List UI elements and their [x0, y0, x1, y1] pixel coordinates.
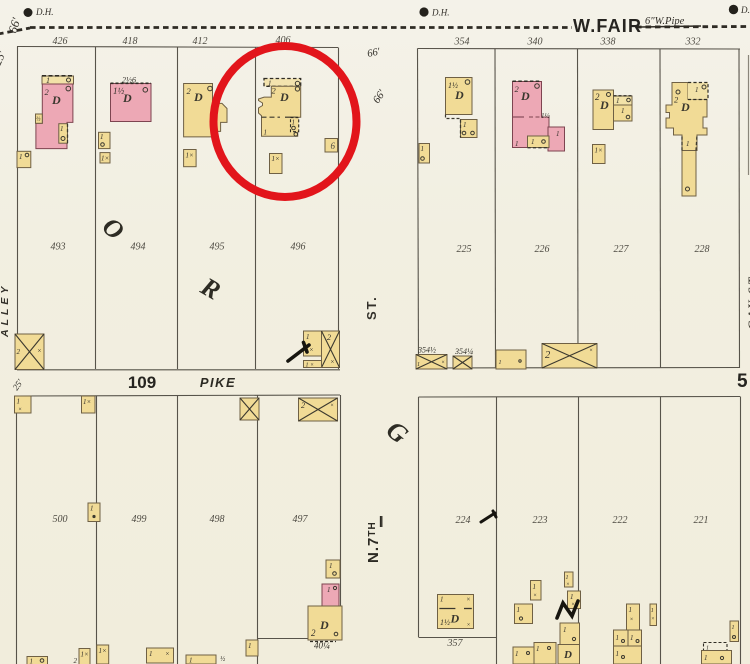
- svg-text:1: 1: [30, 658, 34, 664]
- svg-text:225: 225: [457, 244, 472, 255]
- svg-text:D: D: [520, 89, 530, 103]
- svg-text:1: 1: [695, 86, 699, 94]
- svg-text:½: ½: [36, 116, 41, 123]
- svg-text:1: 1: [189, 657, 193, 664]
- svg-text:5: 5: [737, 371, 748, 392]
- svg-text:354¼: 354¼: [454, 347, 473, 356]
- svg-text:2½6: 2½6: [122, 76, 136, 85]
- svg-text:2: 2: [17, 348, 21, 356]
- svg-text:D: D: [319, 618, 329, 632]
- svg-text:×: ×: [533, 593, 537, 599]
- svg-text:D: D: [279, 90, 289, 104]
- svg-text:×: ×: [330, 403, 334, 409]
- svg-text:338: 338: [600, 37, 616, 48]
- svg-text:332: 332: [685, 37, 701, 48]
- svg-text:1: 1: [570, 593, 574, 601]
- svg-text:PIKE: PIKE: [200, 375, 236, 390]
- svg-text:1: 1: [90, 505, 94, 513]
- svg-text:D: D: [680, 100, 690, 114]
- svg-text:1: 1: [616, 650, 620, 658]
- svg-text:1×: 1×: [272, 155, 280, 163]
- svg-text:418: 418: [123, 36, 138, 47]
- svg-text:495: 495: [210, 242, 225, 253]
- svg-text:D: D: [599, 98, 609, 112]
- svg-text:357: 357: [447, 638, 464, 649]
- svg-text:1: 1: [440, 596, 444, 604]
- svg-text:40¼: 40¼: [314, 641, 330, 651]
- svg-text:GAY.ST: GAY.ST: [745, 275, 750, 330]
- svg-text:412: 412: [193, 36, 208, 47]
- svg-text:1×: 1×: [101, 155, 109, 163]
- svg-text:×: ×: [18, 407, 22, 413]
- svg-text:1: 1: [248, 642, 252, 650]
- svg-text:1: 1: [17, 398, 21, 406]
- svg-text:×: ×: [589, 348, 593, 354]
- svg-text:2: 2: [327, 333, 331, 342]
- svg-text:1: 1: [327, 586, 331, 594]
- svg-text:1: 1: [421, 145, 425, 153]
- svg-text:2: 2: [301, 401, 305, 410]
- svg-text:×: ×: [467, 623, 471, 629]
- svg-text:221: 221: [694, 515, 709, 526]
- svg-text:ST.: ST.: [364, 295, 379, 320]
- svg-text:224: 224: [456, 515, 471, 526]
- svg-text:1×: 1×: [83, 398, 91, 406]
- svg-text:499: 499: [132, 514, 147, 525]
- svg-text:426: 426: [53, 36, 68, 47]
- svg-text:2: 2: [545, 350, 551, 361]
- svg-text:1: 1: [517, 606, 521, 614]
- svg-text:1: 1: [651, 608, 654, 614]
- svg-text:½: ½: [220, 655, 226, 663]
- svg-text:D: D: [193, 90, 203, 104]
- svg-text:1: 1: [499, 360, 502, 366]
- svg-text:498: 498: [210, 514, 225, 525]
- svg-text:1: 1: [686, 140, 690, 148]
- svg-text:D: D: [450, 612, 460, 626]
- svg-text:1: 1: [630, 634, 634, 642]
- svg-text:D.H.: D.H.: [740, 5, 750, 15]
- svg-text:227: 227: [614, 244, 630, 255]
- svg-text:×: ×: [330, 358, 335, 366]
- svg-text:1: 1: [556, 130, 560, 138]
- svg-text:223: 223: [533, 515, 548, 526]
- svg-text:497: 497: [293, 514, 309, 525]
- svg-text:1: 1: [515, 140, 519, 148]
- svg-text:×: ×: [466, 596, 471, 604]
- svg-text:2: 2: [74, 657, 78, 664]
- svg-text:1: 1: [533, 583, 537, 591]
- svg-text:1: 1: [417, 362, 420, 368]
- svg-text:1: 1: [704, 654, 708, 662]
- svg-text:2: 2: [311, 628, 316, 638]
- svg-text:1×: 1×: [81, 651, 89, 659]
- svg-text:1½: 1½: [440, 618, 450, 627]
- svg-text:1×: 1×: [186, 152, 194, 160]
- svg-text:1: 1: [732, 625, 735, 631]
- svg-text:226: 226: [535, 244, 550, 255]
- svg-text:1 ×: 1 ×: [306, 363, 315, 369]
- svg-text:493: 493: [51, 242, 66, 253]
- svg-text:109: 109: [128, 373, 156, 392]
- svg-text:340: 340: [527, 37, 543, 48]
- svg-text:496: 496: [291, 242, 306, 253]
- svg-text:D: D: [51, 93, 61, 107]
- svg-text:1×: 1×: [99, 647, 107, 655]
- svg-text:1: 1: [463, 121, 467, 129]
- svg-text:×: ×: [165, 650, 170, 658]
- svg-text:×: ×: [37, 347, 42, 355]
- svg-text:1: 1: [149, 650, 153, 658]
- svg-text:D.H.: D.H.: [431, 8, 450, 18]
- svg-text:6″W.Pipe: 6″W.Pipe: [645, 16, 685, 27]
- svg-text:494: 494: [131, 242, 146, 253]
- svg-text:1½: 1½: [541, 112, 551, 120]
- svg-text:1: 1: [563, 626, 567, 634]
- svg-text:354½: 354½: [417, 346, 436, 355]
- svg-text:1: 1: [292, 119, 296, 127]
- svg-text:×: ×: [441, 360, 445, 366]
- svg-text:6: 6: [331, 141, 336, 151]
- svg-text:D.H.: D.H.: [35, 7, 54, 17]
- svg-text:D: D: [454, 88, 464, 102]
- svg-text:1: 1: [616, 634, 620, 642]
- svg-text:1: 1: [536, 645, 540, 653]
- svg-text:ALLEY: ALLEY: [0, 283, 11, 338]
- svg-text:1: 1: [329, 562, 333, 570]
- svg-text:1: 1: [306, 333, 310, 341]
- svg-text:500: 500: [53, 514, 68, 525]
- svg-text:222: 222: [613, 515, 628, 526]
- svg-text:D: D: [122, 91, 132, 105]
- svg-text:354: 354: [454, 37, 470, 48]
- svg-text:1: 1: [629, 606, 633, 614]
- svg-text:1: 1: [60, 125, 64, 133]
- svg-text:1: 1: [264, 129, 268, 137]
- svg-text:W.FAIR: W.FAIR: [573, 16, 642, 36]
- svg-text:1: 1: [19, 153, 23, 161]
- svg-text:×: ×: [651, 616, 655, 622]
- svg-text:1: 1: [515, 650, 519, 658]
- svg-text:1×: 1×: [595, 147, 603, 155]
- svg-text:D: D: [563, 649, 572, 661]
- svg-text:×: ×: [309, 346, 314, 354]
- svg-text:1: 1: [531, 138, 535, 146]
- svg-text:1: 1: [566, 575, 569, 581]
- svg-text:1: 1: [616, 97, 620, 105]
- svg-text:×: ×: [566, 582, 570, 588]
- svg-text:1: 1: [621, 107, 625, 115]
- svg-text:1: 1: [100, 133, 104, 141]
- svg-text:228: 228: [695, 244, 710, 255]
- svg-text:×: ×: [630, 617, 634, 623]
